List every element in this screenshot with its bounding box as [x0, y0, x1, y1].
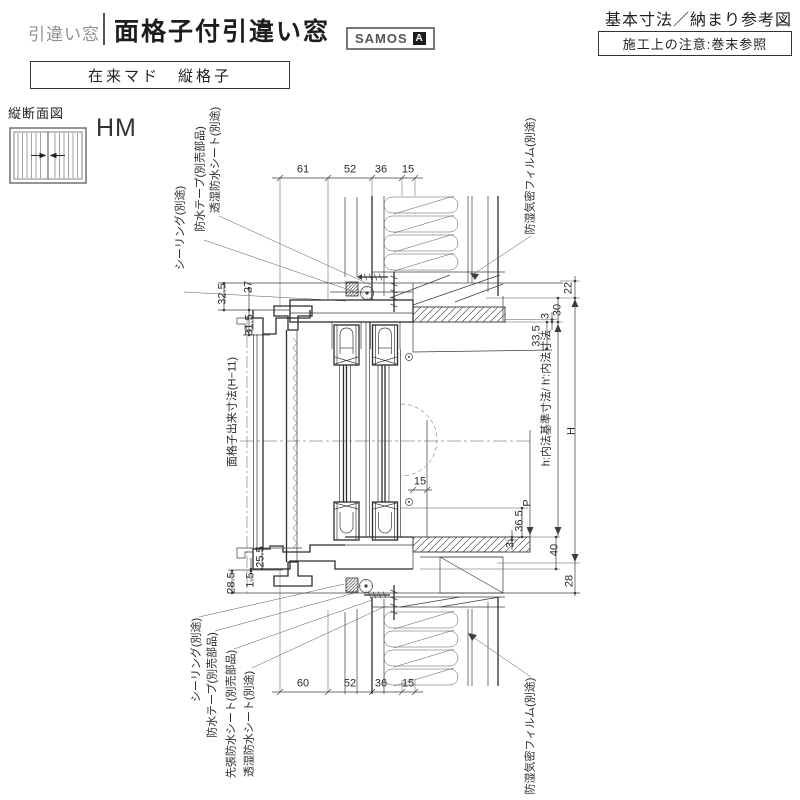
construction-note: 施工上の注意:巻末参照 [598, 31, 792, 56]
dim-label: 40 [550, 544, 561, 556]
dim-label: 15 [414, 477, 426, 488]
sill-framing [372, 597, 505, 607]
sash-exterior [334, 325, 359, 540]
dimension-lines [223, 175, 580, 695]
dim-label: 28 [565, 575, 576, 587]
dim-label: 32.5 [218, 283, 229, 304]
annotation-label: 先張防水シート(別売部品) [227, 650, 238, 778]
dim-label: 60 [297, 679, 309, 690]
dim-label: H [567, 427, 578, 435]
reference-title: 基本寸法／納まり参考図 [590, 6, 792, 30]
interior-trim [413, 350, 552, 593]
dim-label: 3 [506, 542, 517, 548]
dim-label: P [523, 499, 534, 506]
page-title: 面格子付引違い窓 [114, 12, 330, 48]
insulation-top [384, 196, 458, 271]
annotation-label: シーリング(別途) [176, 186, 187, 270]
frame-head [218, 283, 563, 352]
dim-label: 15 [402, 679, 414, 690]
brand-badge: SAMOS A [346, 27, 435, 50]
brand-mark-icon: A [413, 32, 426, 45]
screw-sill-vertical [391, 585, 398, 620]
anchor-rosette-bottom [360, 580, 373, 593]
page: 引違い窓 面格子付引違い窓 SAMOS A 基本寸法／納まり参考図 施工上の注意… [0, 0, 800, 800]
dim-label: 3 [541, 313, 552, 319]
wall-section-bottom [345, 597, 505, 694]
annotation-label: 防水テープ(別売部品) [196, 126, 207, 232]
category-label: 引違い窓 [28, 20, 100, 45]
annotation-label: 防水テープ(別売部品) [208, 632, 219, 738]
handle-clearance-arc [401, 404, 437, 476]
sealing-backer-bottom [346, 578, 358, 592]
sealing-backer-top [346, 282, 358, 296]
subtype-label: 在来マド 縦格子 [30, 61, 290, 89]
sash-interior [366, 322, 401, 540]
dim-label: 28.5 [227, 572, 238, 593]
section-view-label: 縦断面図 [8, 103, 64, 122]
annotation-label: 透湿防水シート(別途) [245, 671, 256, 777]
dim-label: 27 [244, 281, 255, 293]
wall-section-top [345, 196, 505, 322]
dim-label: 30 [553, 304, 564, 316]
dim-label: 52 [344, 679, 356, 690]
dim-label: 31.5 [245, 314, 256, 335]
brand-name: SAMOS [355, 31, 408, 46]
annotation-label: 透湿防水シート(別途) [211, 107, 222, 213]
dim-label: 25.5 [256, 546, 267, 567]
dim-label: 61 [297, 165, 309, 176]
dim-label: 面格子出来寸法(H−11) [228, 357, 239, 467]
dim-label: h:内法基準寸法/ h′:内法寸法 [542, 330, 553, 467]
title-divider [103, 13, 105, 45]
dim-label: 52 [344, 165, 356, 176]
section-code: HM [96, 114, 137, 143]
annotation-label: シーリング(別途) [192, 618, 203, 702]
annotation-label: 防湿気密フィルム(別途) [526, 678, 537, 795]
dim-label: 36 [375, 679, 387, 690]
dim-label: 36.5 [515, 510, 526, 531]
interior-head-board [413, 307, 505, 322]
dim-label: 1.5 [246, 572, 257, 587]
dim-label: 22 [564, 282, 575, 294]
dim-label: 15 [402, 165, 414, 176]
insulation-bottom [384, 611, 458, 686]
anchor-rosette-top [361, 287, 374, 300]
annotation-label: 防湿気密フィルム(別途) [526, 118, 537, 235]
dim-label: 36 [375, 165, 387, 176]
